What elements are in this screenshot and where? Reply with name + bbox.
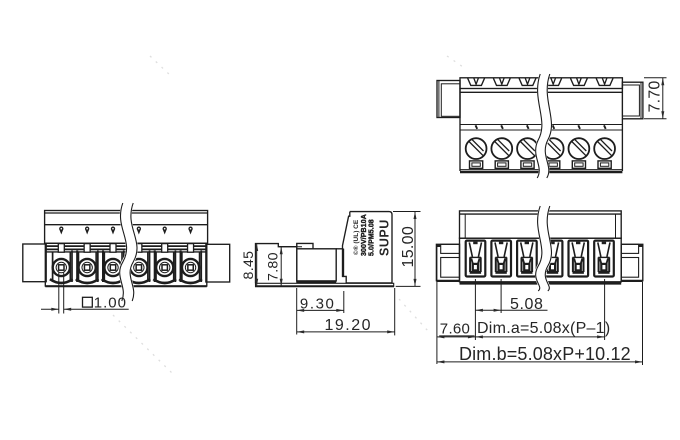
svg-text:300V/PB10A: 300V/PB10A bbox=[361, 214, 368, 256]
svg-text:SUPU: SUPU bbox=[378, 219, 392, 256]
svg-text:9.30: 9.30 bbox=[300, 295, 336, 312]
svg-text:8.45: 8.45 bbox=[241, 251, 257, 280]
svg-text:7.80: 7.80 bbox=[266, 252, 282, 281]
svg-text:©® (UL) CE: ©® (UL) CE bbox=[352, 219, 360, 255]
svg-text:19.20: 19.20 bbox=[325, 317, 373, 334]
svg-text:15.00: 15.00 bbox=[400, 226, 417, 268]
svg-text:5.08: 5.08 bbox=[510, 296, 544, 313]
svg-text:7.60: 7.60 bbox=[440, 321, 470, 338]
svg-text:Dim.b=5.08xP+10.12: Dim.b=5.08xP+10.12 bbox=[459, 344, 631, 364]
svg-text:Dim.a=5.08x(P–1): Dim.a=5.08x(P–1) bbox=[477, 320, 610, 337]
svg-text:5.0/PM5.08: 5.0/PM5.08 bbox=[369, 219, 376, 256]
svg-text:7.70: 7.70 bbox=[647, 81, 664, 113]
svg-text:1.00: 1.00 bbox=[94, 295, 127, 312]
